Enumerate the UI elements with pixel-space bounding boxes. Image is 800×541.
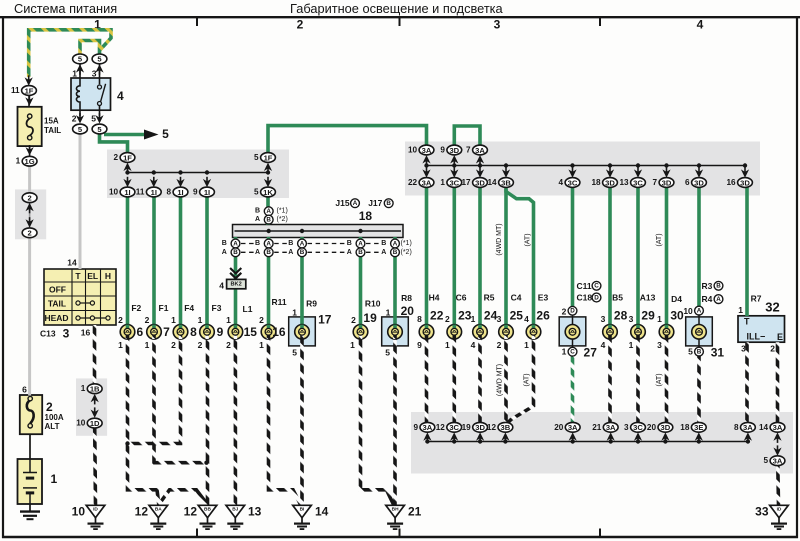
- svg-text:28: 28: [614, 308, 628, 322]
- svg-text:2: 2: [171, 340, 176, 350]
- svg-text:14: 14: [487, 178, 497, 187]
- svg-text:EL: EL: [87, 271, 98, 281]
- svg-text:1: 1: [198, 315, 203, 325]
- svg-text:3E: 3E: [694, 423, 703, 432]
- svg-text:31: 31: [711, 345, 725, 359]
- svg-text:3D: 3D: [449, 146, 459, 155]
- svg-text:1F: 1F: [25, 86, 34, 95]
- svg-text:HEAD: HEAD: [44, 313, 68, 323]
- svg-text:B: B: [347, 240, 352, 247]
- svg-text:(AT): (AT): [656, 233, 663, 246]
- svg-text:1: 1: [524, 340, 529, 350]
- svg-text:H4: H4: [429, 293, 440, 303]
- svg-text:2: 2: [497, 340, 502, 350]
- svg-text:TAIL: TAIL: [44, 126, 61, 135]
- svg-text:1I: 1I: [151, 188, 157, 197]
- svg-text:ILL−: ILL−: [747, 332, 766, 342]
- svg-text:13: 13: [619, 178, 629, 187]
- svg-text:1I: 1I: [124, 188, 130, 197]
- svg-text:1: 1: [16, 157, 21, 166]
- svg-text:R8: R8: [401, 293, 412, 303]
- svg-text:16: 16: [272, 325, 286, 339]
- svg-text:18: 18: [680, 423, 690, 432]
- svg-text:OFF: OFF: [49, 285, 66, 295]
- svg-text:BA: BA: [155, 507, 162, 513]
- svg-text:3: 3: [494, 18, 501, 32]
- svg-text:A: A: [255, 216, 260, 223]
- svg-text:3C: 3C: [449, 423, 459, 432]
- svg-text:2: 2: [259, 315, 264, 325]
- svg-text:3D: 3D: [661, 423, 671, 432]
- svg-text:B: B: [697, 348, 702, 355]
- svg-text:2: 2: [72, 114, 77, 124]
- svg-text:1: 1: [81, 384, 86, 393]
- svg-text:1: 1: [440, 178, 445, 187]
- svg-text:10: 10: [408, 146, 418, 155]
- svg-text:9: 9: [217, 325, 224, 339]
- svg-text:(*1): (*1): [277, 208, 288, 215]
- svg-text:A: A: [222, 249, 227, 256]
- svg-text:3A: 3A: [773, 423, 783, 432]
- svg-text:BK2: BK2: [230, 281, 241, 287]
- svg-text:2: 2: [351, 315, 356, 325]
- svg-text:1: 1: [350, 340, 355, 350]
- svg-text:4: 4: [471, 340, 476, 350]
- svg-text:3: 3: [601, 314, 606, 324]
- svg-text:8: 8: [167, 188, 172, 197]
- svg-text:1I: 1I: [177, 188, 183, 197]
- svg-text:3A: 3A: [475, 146, 485, 155]
- svg-text:29: 29: [641, 308, 655, 322]
- svg-text:1: 1: [657, 314, 662, 324]
- svg-text:3A: 3A: [422, 178, 432, 187]
- svg-text:A: A: [716, 296, 721, 303]
- svg-text:12: 12: [487, 423, 497, 432]
- svg-text:1D: 1D: [90, 419, 100, 428]
- svg-text:A: A: [347, 249, 352, 256]
- svg-text:3A: 3A: [423, 423, 433, 432]
- svg-text:19: 19: [462, 423, 472, 432]
- svg-text:4: 4: [524, 314, 529, 324]
- svg-text:4: 4: [697, 18, 704, 32]
- svg-text:2: 2: [562, 306, 567, 316]
- svg-text:4: 4: [559, 178, 564, 187]
- svg-text:3: 3: [92, 69, 97, 79]
- svg-text:4: 4: [601, 340, 606, 350]
- svg-text:3A: 3A: [773, 457, 783, 466]
- svg-text:33: 33: [755, 505, 769, 519]
- svg-text:B: B: [255, 208, 260, 215]
- svg-text:8: 8: [734, 423, 739, 432]
- svg-text:T: T: [75, 271, 81, 281]
- svg-text:C11: C11: [577, 281, 592, 291]
- svg-text:8: 8: [417, 314, 422, 324]
- svg-text:26: 26: [536, 308, 550, 322]
- svg-text:B: B: [386, 200, 391, 207]
- svg-text:R4: R4: [702, 294, 713, 304]
- svg-text:11: 11: [136, 188, 145, 197]
- svg-text:21: 21: [592, 423, 602, 432]
- svg-text:5: 5: [254, 153, 259, 162]
- svg-text:ID: ID: [93, 507, 98, 513]
- svg-text:4: 4: [117, 89, 124, 103]
- svg-text:20: 20: [554, 423, 564, 432]
- svg-text:Габаритное освещение и подсвет: Габаритное освещение и подсветка: [290, 1, 504, 16]
- svg-text:R9: R9: [306, 299, 317, 309]
- svg-text:A: A: [266, 240, 271, 247]
- svg-text:1G: 1G: [25, 157, 35, 166]
- svg-text:C18: C18: [577, 293, 593, 303]
- svg-text:1: 1: [226, 315, 231, 325]
- svg-text:(AT): (AT): [525, 233, 532, 246]
- svg-text:J17: J17: [368, 198, 382, 208]
- svg-text:B: B: [222, 240, 227, 247]
- svg-text:R11: R11: [271, 297, 286, 307]
- svg-text:25: 25: [510, 308, 524, 322]
- svg-text:BH: BH: [392, 507, 399, 513]
- svg-text:4: 4: [219, 281, 224, 291]
- svg-text:3: 3: [63, 327, 70, 341]
- svg-text:(*2): (*2): [277, 216, 288, 223]
- svg-text:9: 9: [193, 188, 198, 197]
- svg-text:18: 18: [591, 178, 601, 187]
- svg-text:8: 8: [190, 325, 197, 339]
- svg-text:(*1): (*1): [401, 240, 412, 247]
- svg-text:1: 1: [171, 315, 176, 325]
- svg-text:20: 20: [401, 304, 415, 318]
- svg-text:1: 1: [259, 340, 264, 350]
- svg-text:3D: 3D: [740, 178, 750, 187]
- svg-text:BI: BI: [300, 507, 305, 513]
- svg-text:1F: 1F: [123, 153, 132, 162]
- svg-text:B: B: [393, 249, 398, 256]
- svg-text:3D: 3D: [475, 178, 485, 187]
- svg-text:3D: 3D: [662, 178, 672, 187]
- svg-text:3C: 3C: [633, 178, 643, 187]
- svg-text:A: A: [358, 240, 363, 247]
- svg-text:5: 5: [162, 127, 169, 141]
- svg-text:1: 1: [445, 340, 450, 350]
- svg-text:1: 1: [118, 340, 123, 350]
- svg-text:1: 1: [51, 472, 58, 486]
- svg-text:5: 5: [385, 347, 390, 357]
- svg-text:10: 10: [76, 419, 86, 428]
- svg-text:B: B: [233, 249, 238, 256]
- svg-text:30: 30: [670, 308, 684, 322]
- svg-text:3A: 3A: [743, 423, 753, 432]
- svg-text:1I: 1I: [204, 188, 210, 197]
- svg-text:17: 17: [318, 313, 332, 327]
- svg-text:B: B: [358, 249, 363, 256]
- svg-text:3C: 3C: [568, 178, 578, 187]
- svg-text:2: 2: [145, 315, 150, 325]
- svg-text:3B: 3B: [501, 178, 511, 187]
- svg-text:14: 14: [67, 258, 77, 268]
- svg-text:6: 6: [22, 385, 27, 395]
- svg-text:5: 5: [91, 114, 96, 124]
- svg-text:B: B: [300, 249, 305, 256]
- svg-text:F1: F1: [159, 303, 169, 313]
- svg-text:12: 12: [135, 505, 149, 519]
- svg-text:1: 1: [145, 340, 150, 350]
- svg-text:B: B: [381, 240, 386, 247]
- svg-text:ID: ID: [777, 507, 782, 513]
- svg-text:1: 1: [562, 347, 567, 357]
- svg-text:3A: 3A: [606, 423, 616, 432]
- svg-text:20: 20: [647, 423, 657, 432]
- svg-text:10: 10: [72, 505, 86, 519]
- svg-text:12: 12: [184, 505, 198, 519]
- svg-text:R10: R10: [365, 299, 381, 309]
- svg-text:H: H: [105, 271, 111, 281]
- svg-text:16: 16: [726, 178, 736, 187]
- svg-text:Система питания: Система питания: [14, 1, 117, 16]
- svg-text:2: 2: [297, 18, 304, 32]
- svg-text:D4: D4: [671, 294, 682, 304]
- svg-text:A13: A13: [640, 293, 656, 303]
- svg-text:C4: C4: [511, 293, 522, 303]
- svg-text:3A: 3A: [422, 146, 432, 155]
- svg-text:A: A: [288, 249, 293, 256]
- svg-text:9: 9: [440, 146, 445, 155]
- svg-text:C13: C13: [40, 329, 56, 339]
- svg-text:11: 11: [11, 86, 20, 95]
- svg-text:13: 13: [248, 505, 262, 519]
- svg-text:2: 2: [445, 314, 450, 324]
- svg-text:14: 14: [315, 505, 329, 519]
- svg-text:3A: 3A: [568, 423, 578, 432]
- svg-text:B: B: [716, 283, 721, 290]
- svg-text:A: A: [300, 240, 305, 247]
- svg-text:2: 2: [46, 400, 53, 414]
- svg-text:C: C: [594, 283, 599, 290]
- svg-text:10: 10: [109, 188, 119, 197]
- svg-text:E: E: [777, 332, 783, 342]
- svg-text:A: A: [381, 249, 386, 256]
- svg-text:3D: 3D: [694, 178, 704, 187]
- svg-text:3C: 3C: [633, 423, 643, 432]
- svg-text:1: 1: [292, 307, 297, 317]
- svg-text:3: 3: [624, 423, 629, 432]
- svg-text:B: B: [266, 216, 271, 223]
- svg-text:B: B: [266, 249, 271, 256]
- svg-text:5: 5: [688, 347, 693, 357]
- svg-text:1: 1: [629, 340, 634, 350]
- svg-text:12: 12: [436, 423, 446, 432]
- svg-text:1: 1: [386, 307, 391, 317]
- svg-text:L1: L1: [243, 304, 253, 314]
- svg-text:1F: 1F: [264, 153, 273, 162]
- svg-text:17: 17: [461, 178, 471, 187]
- svg-text:ALT: ALT: [45, 422, 60, 431]
- svg-text:E3: E3: [538, 293, 549, 303]
- svg-text:C6: C6: [456, 293, 467, 303]
- svg-text:3: 3: [497, 314, 502, 324]
- svg-text:A: A: [266, 208, 271, 215]
- svg-text:F2: F2: [131, 303, 141, 313]
- svg-text:3B: 3B: [501, 423, 511, 432]
- svg-text:C: C: [570, 349, 575, 356]
- svg-text:D: D: [594, 294, 599, 301]
- svg-text:2: 2: [770, 343, 775, 353]
- svg-text:21: 21: [408, 505, 422, 519]
- svg-text:14: 14: [759, 423, 769, 432]
- svg-text:1K: 1K: [263, 188, 273, 197]
- svg-text:1: 1: [72, 69, 77, 79]
- svg-text:5: 5: [764, 456, 769, 465]
- svg-text:3: 3: [657, 340, 662, 350]
- svg-text:A: A: [233, 240, 238, 247]
- svg-text:BB: BB: [204, 507, 211, 513]
- svg-text:22: 22: [408, 178, 418, 187]
- svg-text:1: 1: [471, 314, 476, 324]
- svg-text:19: 19: [363, 311, 377, 325]
- svg-text:3D: 3D: [475, 423, 485, 432]
- svg-text:B5: B5: [612, 293, 623, 303]
- svg-text:2: 2: [226, 340, 231, 350]
- svg-text:1: 1: [738, 305, 743, 315]
- svg-text:7: 7: [466, 146, 471, 155]
- svg-text:A: A: [353, 200, 358, 207]
- svg-text:10: 10: [683, 306, 693, 316]
- svg-text:R3: R3: [702, 281, 713, 291]
- svg-text:2: 2: [114, 153, 119, 162]
- svg-text:J15: J15: [335, 198, 349, 208]
- svg-text:15A: 15A: [44, 117, 59, 126]
- svg-text:22: 22: [430, 308, 444, 322]
- svg-text:5: 5: [292, 347, 297, 357]
- svg-text:B: B: [255, 240, 260, 247]
- svg-text:7: 7: [163, 325, 170, 339]
- svg-text:A: A: [697, 307, 702, 314]
- svg-text:T: T: [744, 317, 750, 327]
- svg-text:F3: F3: [212, 303, 222, 313]
- svg-text:32: 32: [765, 300, 779, 315]
- svg-text:BJ: BJ: [232, 507, 238, 513]
- svg-text:9: 9: [417, 340, 422, 350]
- svg-text:R7: R7: [751, 294, 762, 304]
- svg-text:24: 24: [484, 308, 498, 322]
- svg-text:6: 6: [136, 325, 143, 339]
- svg-text:(AT): (AT): [656, 373, 663, 386]
- svg-text:(*2): (*2): [401, 249, 412, 256]
- svg-text:18: 18: [359, 209, 373, 223]
- svg-text:100A: 100A: [45, 413, 64, 422]
- svg-text:2: 2: [27, 229, 31, 238]
- svg-text:D: D: [570, 308, 575, 315]
- svg-text:B: B: [288, 240, 293, 247]
- svg-text:5: 5: [254, 188, 259, 197]
- svg-text:9: 9: [413, 423, 418, 432]
- svg-text:7: 7: [653, 178, 658, 187]
- svg-text:2: 2: [198, 340, 203, 350]
- svg-text:15: 15: [244, 325, 258, 339]
- svg-text:R5: R5: [484, 293, 495, 303]
- svg-text:27: 27: [584, 346, 598, 360]
- svg-text:2: 2: [118, 315, 123, 325]
- svg-text:3: 3: [629, 314, 634, 324]
- svg-text:(4WD MT): (4WD MT): [497, 364, 504, 396]
- svg-text:TAIL: TAIL: [48, 299, 66, 309]
- svg-text:1B: 1B: [90, 385, 100, 394]
- svg-text:3C: 3C: [449, 178, 459, 187]
- svg-text:(4WD MT): (4WD MT): [496, 223, 503, 255]
- svg-text:A: A: [255, 249, 260, 256]
- svg-text:2: 2: [27, 194, 31, 203]
- svg-text:16: 16: [81, 327, 91, 337]
- svg-text:(AT): (AT): [524, 373, 531, 386]
- svg-text:3: 3: [741, 343, 746, 353]
- svg-text:6: 6: [685, 178, 690, 187]
- svg-text:3D: 3D: [605, 178, 615, 187]
- svg-text:F4: F4: [184, 303, 194, 313]
- svg-text:A: A: [393, 240, 398, 247]
